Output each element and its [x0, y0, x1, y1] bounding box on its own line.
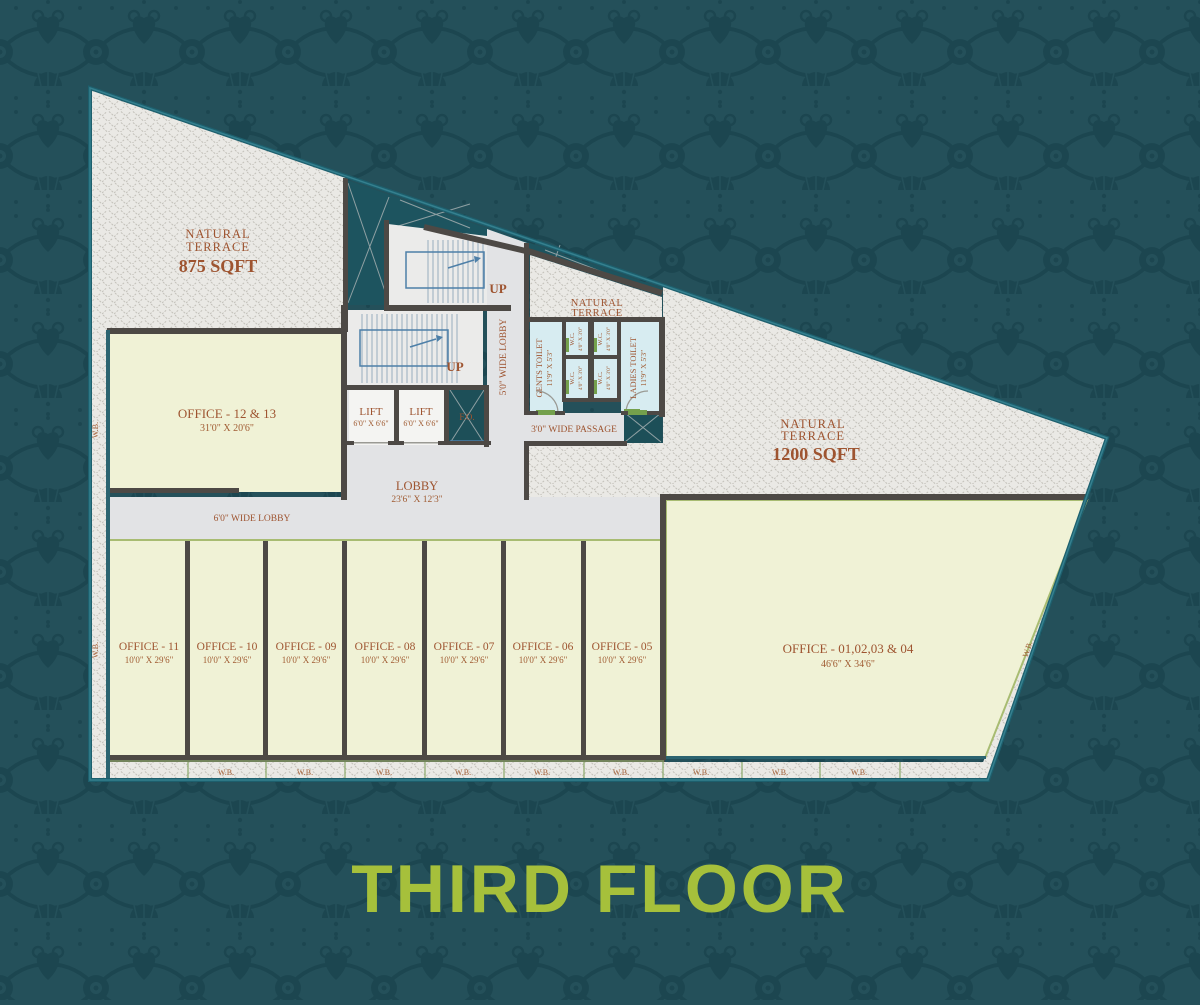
wb-label-5: W.B.: [534, 768, 550, 777]
wide-lobby-5-label: 5'0" WIDE LOBBY: [499, 319, 509, 396]
wc1-label: W.C.: [569, 332, 576, 345]
office-11-label: OFFICE - 11: [119, 641, 180, 653]
left-inner-wall: [106, 330, 110, 778]
terrace-under-toilets: [528, 443, 665, 500]
gents-toilet-dims: 11'9" X 5'3": [545, 350, 554, 386]
wb-label-3: W.B.: [376, 768, 392, 777]
office-08-label: OFFICE - 08: [355, 641, 416, 653]
office-05-dims: 10'0" X 29'6": [598, 655, 647, 665]
lift-2-dims: 6'0" X 6'6": [403, 419, 438, 428]
floor-plan-canvas: NATURAL TERRACE 875 SQFT NATURAL TERRACE…: [0, 0, 1200, 1000]
wb-label-left-1: W.B.: [91, 422, 100, 438]
terrace-tl-line1: NATURAL: [185, 227, 250, 241]
wc4-label: W.C.: [597, 371, 604, 384]
office-07-dims: 10'0" X 29'6": [440, 655, 489, 665]
wb-label-7: W.B.: [693, 768, 709, 777]
lift-1-dims: 6'0" X 6'6": [353, 419, 388, 428]
terrace-tl-line2: TERRACE: [186, 240, 250, 254]
office-12-13-dims: 31'0" X 20'6": [200, 423, 254, 434]
wc3-dims: 4'0" X 3'0": [578, 366, 584, 390]
stair-upper-up-label: UP: [489, 281, 506, 296]
office-10-label: OFFICE - 10: [197, 641, 258, 653]
wb-label-2: W.B.: [297, 768, 313, 777]
office-05-label: OFFICE - 05: [592, 641, 653, 653]
terrace-r-area: 1200 SQFT: [772, 444, 860, 464]
terrace-c-line2: TERRACE: [571, 308, 622, 319]
lobby-dims: 23'6" X 12'3": [391, 495, 442, 505]
wb-label-4: W.B.: [455, 768, 471, 777]
wb-strip-left: [90, 332, 107, 780]
lift-1-label: LIFT: [359, 406, 383, 418]
office-09-label: OFFICE - 09: [276, 641, 337, 653]
ladies-toilet-dims: 11'9" X 5'3": [639, 350, 648, 386]
office-10-dims: 10'0" X 29'6": [203, 655, 252, 665]
ladies-toilet-label: LADIES TOILET: [628, 336, 638, 399]
office-06-dims: 10'0" X 29'6": [519, 655, 568, 665]
office-09-dims: 10'0" X 29'6": [282, 655, 331, 665]
office-06-label: OFFICE - 06: [513, 641, 574, 653]
office-12-13-label: OFFICE - 12 & 13: [178, 406, 276, 421]
passage-label: 3'0" WIDE PASSAGE: [531, 425, 617, 435]
wide-lobby-6-label: 6'0" WIDE LOBBY: [214, 514, 291, 524]
wb-label-1: W.B.: [218, 768, 234, 777]
page-title: THIRD FLOOR: [351, 851, 849, 927]
wc1-dims: 4'0" X 3'0": [578, 327, 584, 351]
office-big-label: OFFICE - 01,02,03 & 04: [783, 641, 914, 656]
gents-toilet-label: GENTS TOILET: [534, 338, 544, 398]
wc2-label: W.C.: [597, 332, 604, 345]
wb-label-9: W.B.: [851, 768, 867, 777]
office-08-dims: 10'0" X 29'6": [361, 655, 410, 665]
wb-label-left-2: W.B.: [91, 642, 100, 658]
wb-label-6: W.B.: [613, 768, 629, 777]
wc3-label: W.C.: [569, 371, 576, 384]
wc4-dims: 4'0" X 3'0": [606, 366, 612, 390]
office-07-label: OFFICE - 07: [434, 641, 495, 653]
office-11-dims: 10'0" X 29'6": [125, 655, 174, 665]
wb-label-8: W.B.: [772, 768, 788, 777]
terrace-r-line2: TERRACE: [781, 429, 845, 443]
duct-fo-label: F.O.: [459, 412, 474, 422]
stair-lower-up-label: UP: [446, 359, 463, 374]
terrace-tl-area: 875 SQFT: [179, 256, 258, 276]
lobby-label: LOBBY: [396, 479, 438, 493]
stair-lower-room: [345, 310, 483, 388]
big-office-bottom-edge: [666, 756, 986, 759]
wc2-dims: 4'0" X 3'0": [606, 327, 612, 351]
office-big-dims: 46'6" X 34'6": [821, 659, 875, 670]
lift-2-label: LIFT: [409, 406, 433, 418]
